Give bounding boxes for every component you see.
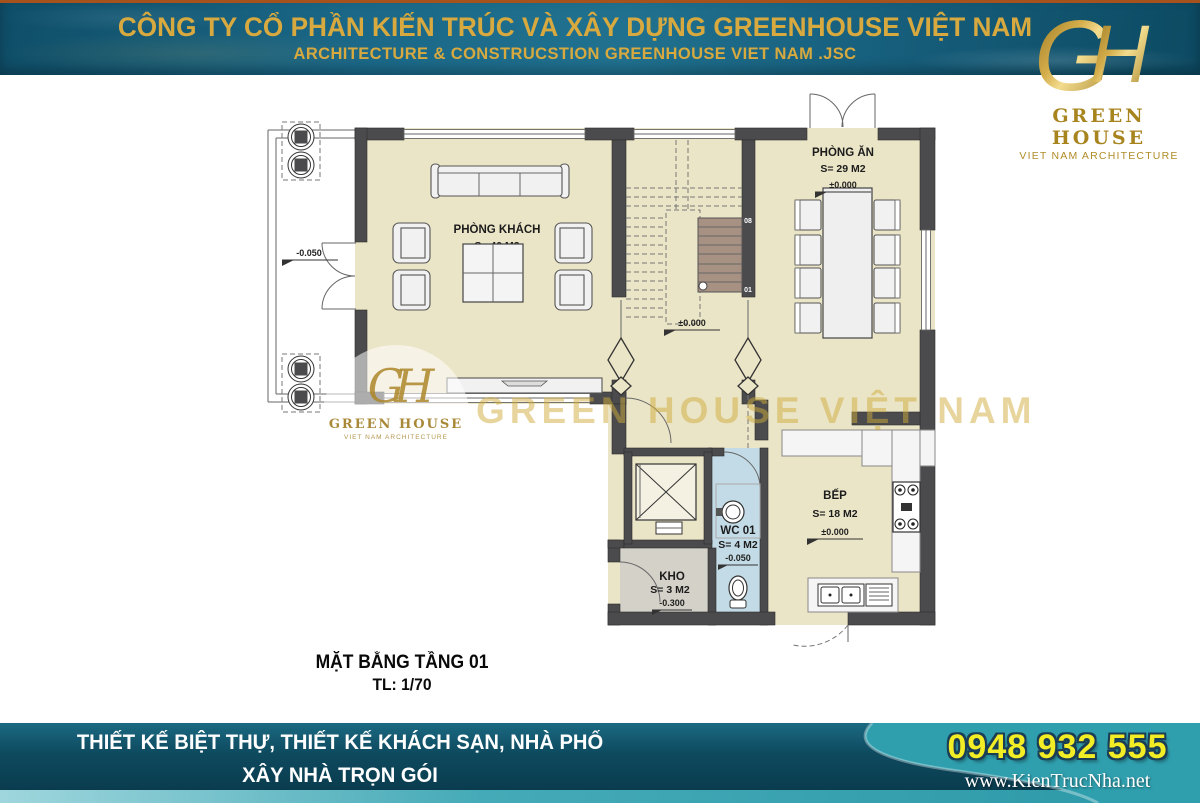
wc-name: WC 01 bbox=[720, 525, 756, 537]
footer-line2: XÂY NHÀ TRỌN GÓI bbox=[52, 764, 628, 788]
toilet-icon bbox=[729, 576, 747, 608]
footer-band: THIẾT KẾ BIỆT THỰ, THIẾT KẾ KHÁCH SẠN, N… bbox=[0, 723, 1200, 803]
svg-text:-0.050: -0.050 bbox=[725, 553, 751, 563]
porch-level-marker: -0.050 bbox=[282, 248, 338, 266]
wc-area: S= 4 M2 bbox=[718, 539, 758, 551]
logo-tagline: VIET NAM ARCHITECTURE bbox=[1004, 150, 1194, 162]
stair-step-top: 08 bbox=[744, 218, 752, 225]
watermark-name: GREEN HOUSE bbox=[322, 417, 470, 432]
svg-text:±0.000: ±0.000 bbox=[678, 318, 705, 328]
porch-columns-bottom bbox=[282, 354, 320, 412]
sink-icon bbox=[818, 584, 892, 606]
dining-furniture bbox=[795, 188, 900, 338]
porch-columns-top bbox=[282, 122, 320, 180]
company-logo: G H GREEN HOUSE VIET NAM ARCHITECTURE bbox=[1004, 4, 1194, 144]
plan-scale: TL: 1/70 bbox=[264, 675, 540, 695]
stair-step-bottom: 01 bbox=[744, 287, 752, 294]
watermark-monogram: GH bbox=[322, 359, 470, 413]
footer-contact: 0948 932 555 www.KienTrucNha.net bbox=[925, 728, 1190, 793]
dining-room-area: S= 29 M2 bbox=[820, 163, 865, 175]
watermark-logo: GH GREEN HOUSE VIET NAM ARCHITECTURE bbox=[322, 345, 470, 493]
svg-text:-0.050: -0.050 bbox=[296, 248, 322, 258]
website-url: www.KienTrucNha.net bbox=[925, 770, 1190, 793]
storage-name: KHO bbox=[659, 571, 685, 583]
svg-text:±0.000: ±0.000 bbox=[829, 180, 856, 190]
plan-title: MẶT BẰNG TẦNG 01 bbox=[264, 652, 540, 674]
stove-icon bbox=[893, 482, 920, 532]
company-title: CÔNG TY CỔ PHẦN KIẾN TRÚC VÀ XÂY DỰNG GR… bbox=[17, 12, 1133, 43]
kitchen-area: S= 18 M2 bbox=[812, 508, 857, 520]
storage-area: S= 3 M2 bbox=[650, 584, 690, 596]
footer-services: THIẾT KẾ BIỆT THỰ, THIẾT KẾ KHÁCH SẠN, N… bbox=[40, 731, 640, 788]
gh-monogram-icon: G H bbox=[1004, 4, 1194, 104]
dining-room-name: PHÒNG ĂN bbox=[812, 146, 874, 159]
svg-text:±0.000: ±0.000 bbox=[821, 527, 848, 537]
coffee-table bbox=[463, 244, 523, 302]
logo-name: GREEN HOUSE bbox=[1004, 105, 1194, 149]
basin-icon bbox=[722, 501, 744, 523]
plan-title-block: MẶT BẰNG TẦNG 01 TL: 1/70 bbox=[252, 652, 552, 695]
svg-text:-0.300: -0.300 bbox=[659, 598, 685, 608]
watermark-tagline: VIET NAM ARCHITECTURE bbox=[322, 434, 470, 441]
phone-number: 0948 932 555 bbox=[925, 728, 1190, 767]
watermark-text: GREEN HOUSE VIỆT NAM bbox=[476, 390, 1037, 432]
company-subtitle: ARCHITECTURE & CONSTRUCSTION GREENHOUSE … bbox=[0, 45, 1150, 64]
living-room-name: PHÒNG KHÁCH bbox=[454, 223, 541, 236]
monogram-h: H bbox=[1090, 9, 1150, 100]
kitchen-name: BẾP bbox=[823, 489, 847, 502]
footer-line1: THIẾT KẾ BIỆT THỰ, THIẾT KẾ KHÁCH SẠN, N… bbox=[52, 731, 628, 755]
